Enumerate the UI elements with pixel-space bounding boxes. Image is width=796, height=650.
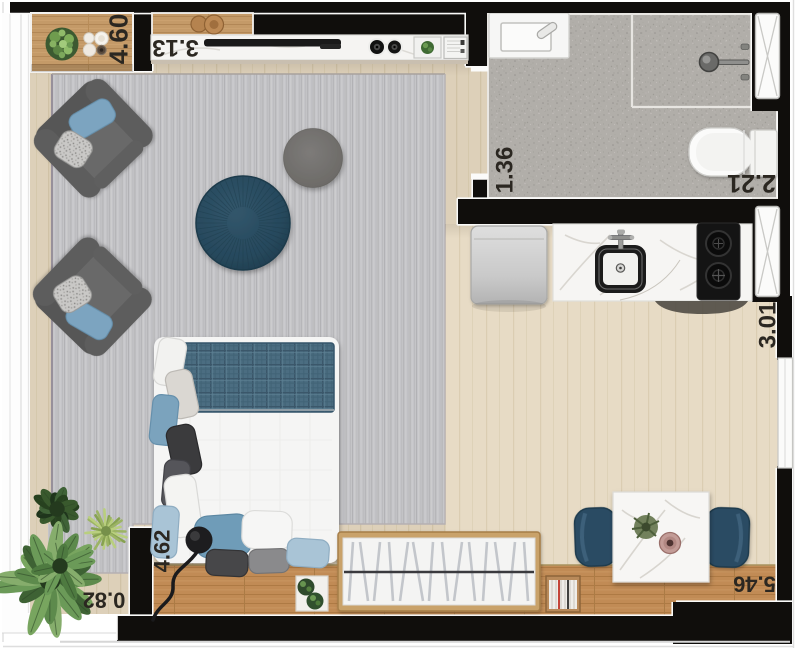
svg-text:2.21: 2.21 (727, 169, 776, 197)
svg-text:3.13: 3.13 (152, 34, 199, 61)
svg-text:0.82: 0.82 (83, 588, 126, 613)
svg-text:1.36: 1.36 (492, 147, 519, 194)
svg-text:4.60: 4.60 (104, 14, 134, 65)
svg-text:4.62: 4.62 (150, 530, 175, 573)
svg-text:5.46: 5.46 (733, 572, 776, 597)
svg-text:3.01: 3.01 (755, 302, 782, 349)
